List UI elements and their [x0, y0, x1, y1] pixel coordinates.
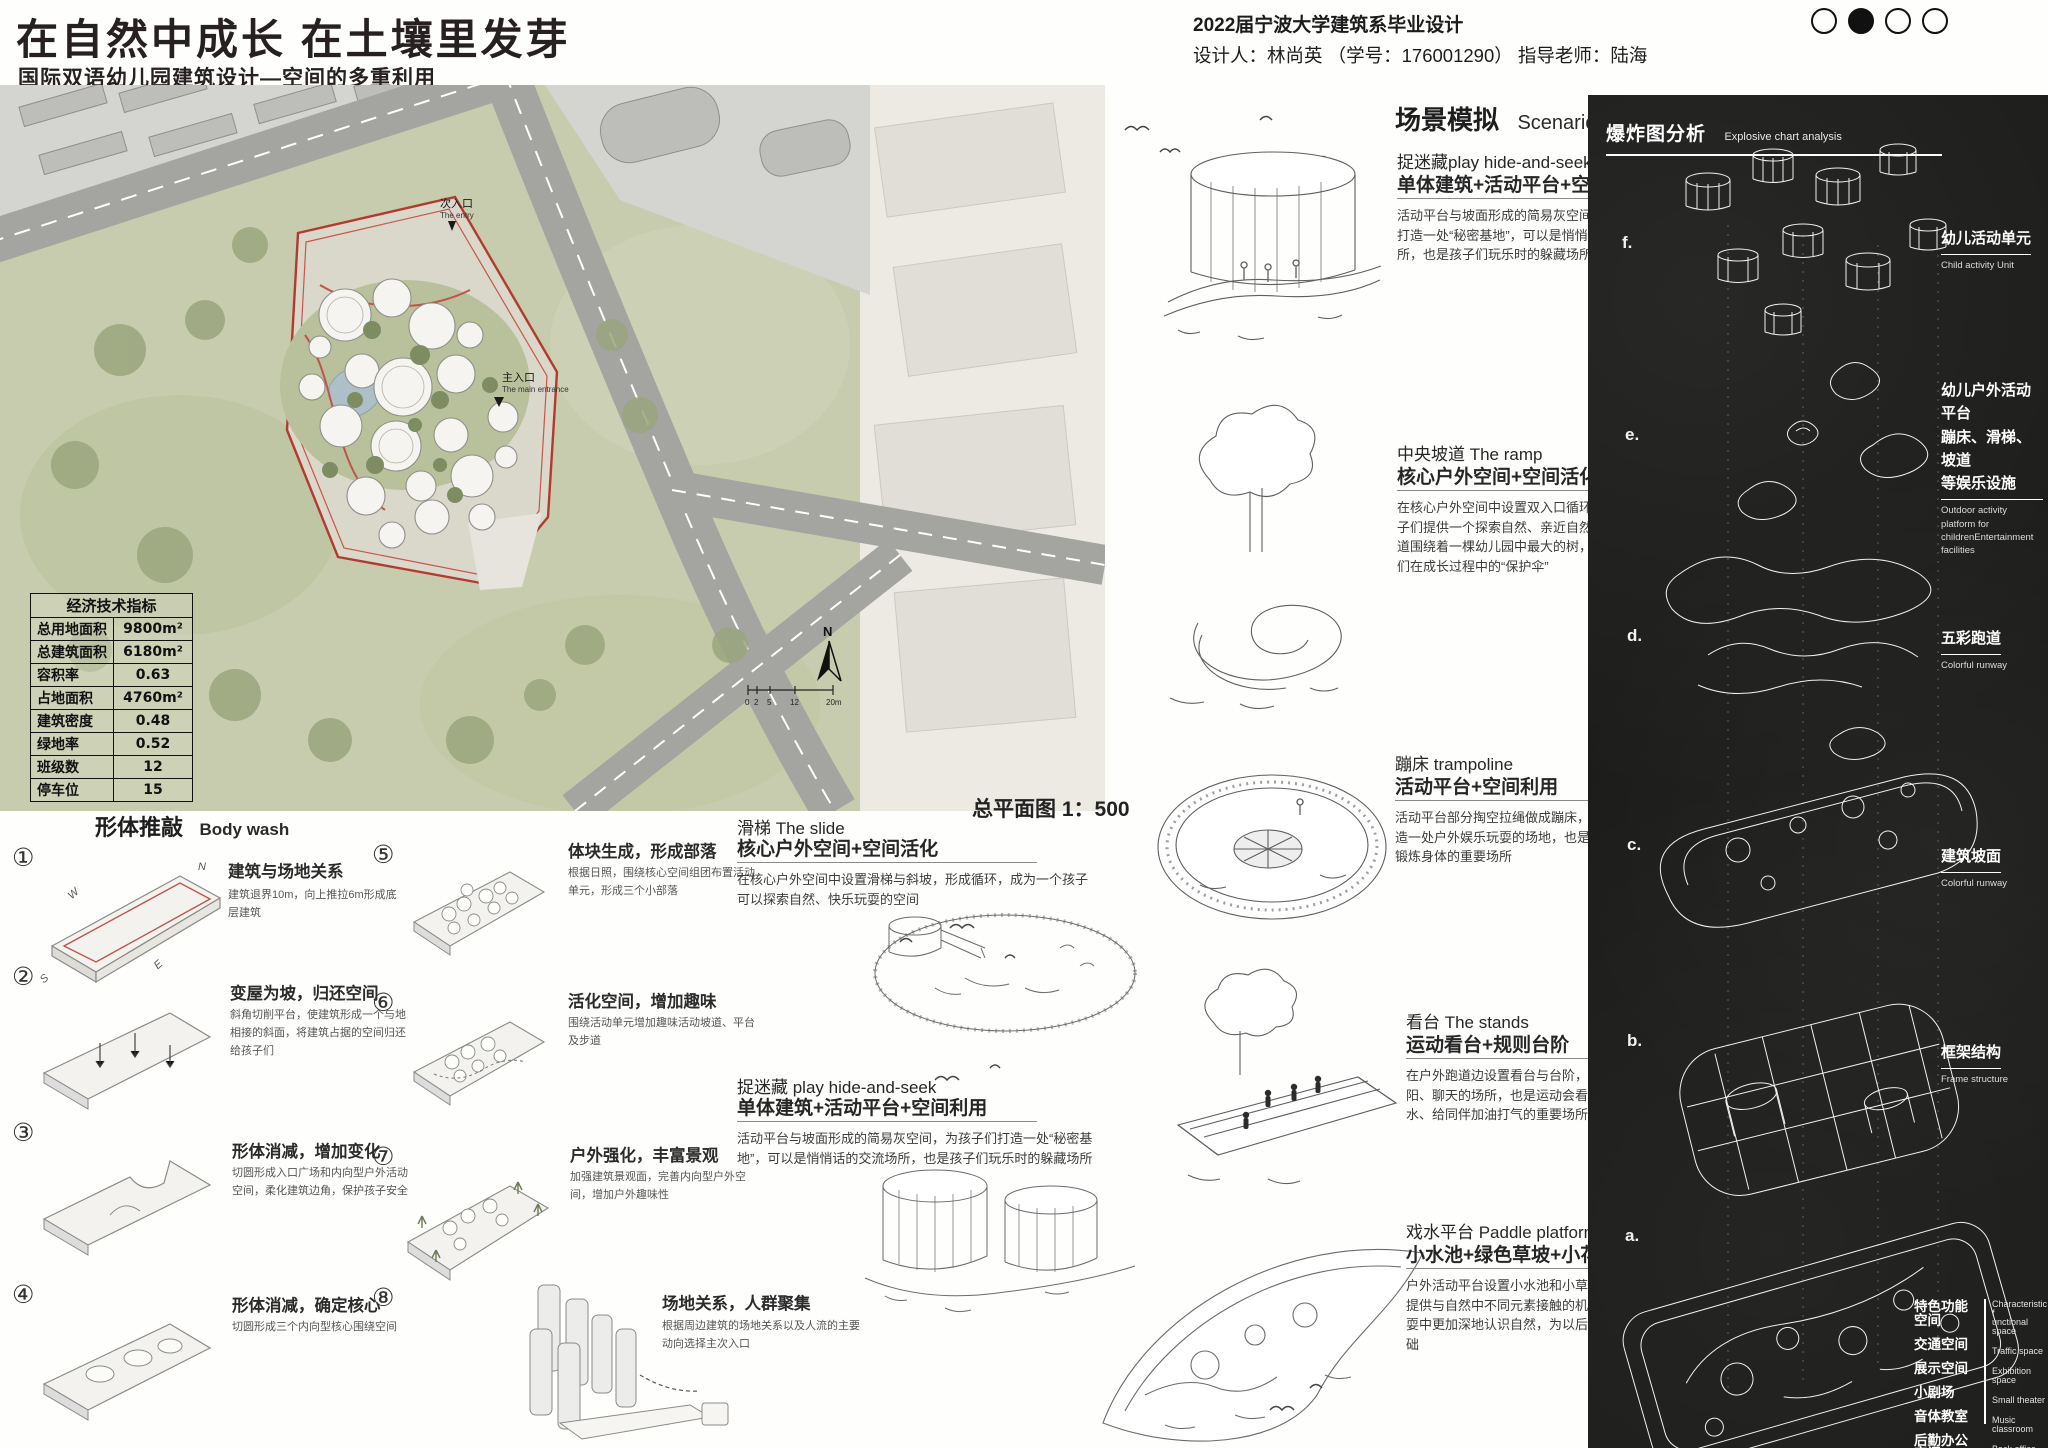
- legend-item: 特色功能空间: [1914, 1300, 1980, 1327]
- indicators-table: 经济技术指标 总用地面积9800m² 总建筑面积6180m² 容积率0.63 占…: [30, 593, 193, 802]
- layer-letter: a.: [1625, 1226, 1639, 1246]
- layer-label: 幼儿活动单元 Child activity Unit: [1941, 227, 2043, 273]
- svg-text:E: E: [152, 958, 166, 972]
- legend-item: 交通空间: [1914, 1338, 1980, 1352]
- layer-letter: d.: [1627, 626, 1642, 646]
- form-diagram-6: [404, 1002, 554, 1120]
- platform-squiggles: [1738, 362, 1928, 519]
- table-row: 建筑密度0.48: [31, 710, 193, 733]
- legend-item: 小剧场: [1914, 1386, 1980, 1400]
- form-diagram-3: [30, 1145, 225, 1265]
- legend-item: 展示空间: [1914, 1362, 1980, 1376]
- form-item-number: ②: [12, 962, 34, 991]
- progress-dots: [1800, 8, 1948, 34]
- presentation-board: 在自然中成长 在土壤里发芽 国际双语幼儿园建筑设计—空间的多重利用 2022届宁…: [0, 0, 2048, 1448]
- table-row: 占地面积4760m²: [31, 687, 193, 710]
- indicators-title: 经济技术指标: [31, 594, 193, 618]
- svg-text:2: 2: [754, 698, 759, 707]
- table-row: 班级数12: [31, 756, 193, 779]
- legend-en-column: Characteristic f unctional space Traffic…: [1992, 1300, 2048, 1448]
- legend-item-en: Small theater: [1992, 1396, 2048, 1405]
- form-diagram-5: [404, 852, 554, 970]
- legend-divider: [1984, 1299, 1986, 1424]
- page-title: 在自然中成长 在土壤里发芽: [16, 6, 571, 67]
- secondary-entry-label: 次入口: [440, 196, 473, 210]
- layer-letter: e.: [1625, 425, 1639, 445]
- explode-panel: 爆炸图分析 Explosive chart analysis: [1588, 95, 2048, 1448]
- trampoline-sketch: [1140, 735, 1405, 970]
- form-item-desc: 加强建筑景观面，完善内向型户外空间，增加户外趣味性: [570, 1168, 750, 1204]
- svg-text:N: N: [823, 624, 832, 639]
- form-item-title: 形体消减，增加变化: [232, 1138, 381, 1162]
- ramp-sketch: [1150, 388, 1375, 713]
- legend-item: 音体教室: [1914, 1410, 1980, 1424]
- form-item-title: 场地关系，人群聚集: [662, 1290, 811, 1314]
- stands-sketch: [1148, 965, 1413, 1210]
- form-item-desc: 建筑退界10m，向上推拉6m形成底层建筑: [228, 886, 400, 922]
- school-line: 2022届宁波大学建筑系毕业设计: [1193, 10, 1463, 37]
- form-study-title-en: Body wash: [199, 820, 289, 839]
- form-item-number: ④: [12, 1280, 34, 1309]
- legend-item: 后勤办公空间: [1914, 1434, 1980, 1448]
- legend-item-en: Exhibition space: [1992, 1367, 2048, 1385]
- svg-text:12: 12: [790, 698, 799, 707]
- hide-seek-sketch: [1148, 112, 1393, 362]
- form-diagram-1: NW SE: [34, 850, 234, 1000]
- explode-line-art: [1588, 95, 2048, 1448]
- form-item-desc: 根据周边建筑的场地关系以及人流的主要动向选择主次入口: [662, 1317, 862, 1353]
- layer-label: 五彩跑道 Colorful runway: [1941, 627, 2043, 673]
- form-item-number: ⑧: [372, 1283, 394, 1312]
- slope-plate: [1660, 774, 1977, 927]
- form-item-title: 活化空间，增加趣味: [568, 988, 717, 1012]
- legend-item-en: Traffic space: [1992, 1347, 2048, 1356]
- progress-dot: [1885, 8, 1911, 34]
- form-item-number: ⑤: [372, 840, 394, 869]
- table-row: 总建筑面积6180m²: [31, 641, 193, 664]
- legend-item-en: Music classroom: [1992, 1416, 2048, 1434]
- layer-letter: c.: [1627, 835, 1641, 855]
- form-item-title: 户外强化，丰富景观: [570, 1142, 719, 1166]
- unit-cylinders: [1686, 144, 1946, 335]
- form-item-title: 形体消减，确定核心: [232, 1292, 381, 1316]
- table-row: 总用地面积9800m²: [31, 618, 193, 641]
- scenario-title: 场景模拟: [1395, 105, 1499, 135]
- layer-label: 幼儿户外活动平台 蹦床、滑梯、坡道 等娱乐设施 Outdoor activity…: [1941, 379, 2043, 557]
- form-item-number: ①: [12, 843, 34, 872]
- layer-letter: b.: [1627, 1031, 1642, 1051]
- scenario-block-subtitle: 运动看台+规则台阶: [1406, 1030, 1569, 1057]
- legend-cn-column: 特色功能空间 交通空间 展示空间 小剧场 音体教室 后勤办公空间: [1914, 1300, 1980, 1448]
- form-item-title: 体块生成，形成部落: [568, 838, 717, 862]
- scenario-block-subtitle: 小水池+绿色草坡+小花园: [1406, 1240, 1618, 1267]
- form-study-title: 形体推敲: [95, 815, 183, 840]
- svg-text:5: 5: [767, 698, 772, 707]
- form-item-desc: 根据日照，围绕核心空间组团布置活动单元，形成三个小部落: [568, 864, 758, 900]
- form-diagram-4: [30, 1308, 225, 1428]
- form-item-title: 建筑与场地关系: [228, 858, 344, 882]
- progress-dot: [1922, 8, 1948, 34]
- table-row: 绿地率0.52: [31, 733, 193, 756]
- frame-structure: [1670, 994, 1968, 1205]
- form-item-number: ③: [12, 1118, 34, 1147]
- form-item-desc: 围绕活动单元增加趣味活动坡道、平台及步道: [568, 1014, 758, 1050]
- table-row: 停车位15: [31, 779, 193, 802]
- progress-dot-active: [1848, 8, 1874, 34]
- svg-text:W: W: [66, 885, 83, 902]
- svg-text:N: N: [198, 861, 206, 873]
- main-entry-label-en: The main entrance: [502, 385, 569, 394]
- form-study-header: 形体推敲 Body wash: [95, 810, 289, 842]
- layer-letter: f.: [1622, 233, 1632, 253]
- runway-loops: [1666, 557, 1931, 760]
- form-item-desc: 切圆形成三个内向型核心围绕空间: [232, 1318, 414, 1336]
- table-row: 容积率0.63: [31, 664, 193, 687]
- form-item-number: ⑥: [372, 988, 394, 1017]
- main-entry-label: 主入口: [502, 371, 535, 384]
- svg-text:S: S: [38, 972, 52, 986]
- scenario-block-subtitle: 核心户外空间+空间活化: [1397, 462, 1598, 489]
- designer-line: 设计人：林尚英 （学号：176001290） 指导老师：陆海: [1193, 42, 1647, 68]
- secondary-entry-label-en: The entry: [440, 211, 474, 220]
- layer-label: 建筑坡面 Colorful runway: [1941, 845, 2043, 891]
- form-item-number: ⑦: [372, 1142, 394, 1171]
- svg-text:0: 0: [745, 698, 750, 707]
- layer-label: 框架结构 Frame structure: [1941, 1041, 2043, 1087]
- form-diagram-2: [30, 995, 225, 1120]
- scenario-block-subtitle: 活动平台+空间利用: [1395, 772, 1558, 799]
- legend-item-en: Characteristic f unctional space: [1992, 1300, 2048, 1336]
- progress-dot: [1811, 8, 1837, 34]
- form-item-title: 变屋为坡，归还空间: [230, 980, 379, 1004]
